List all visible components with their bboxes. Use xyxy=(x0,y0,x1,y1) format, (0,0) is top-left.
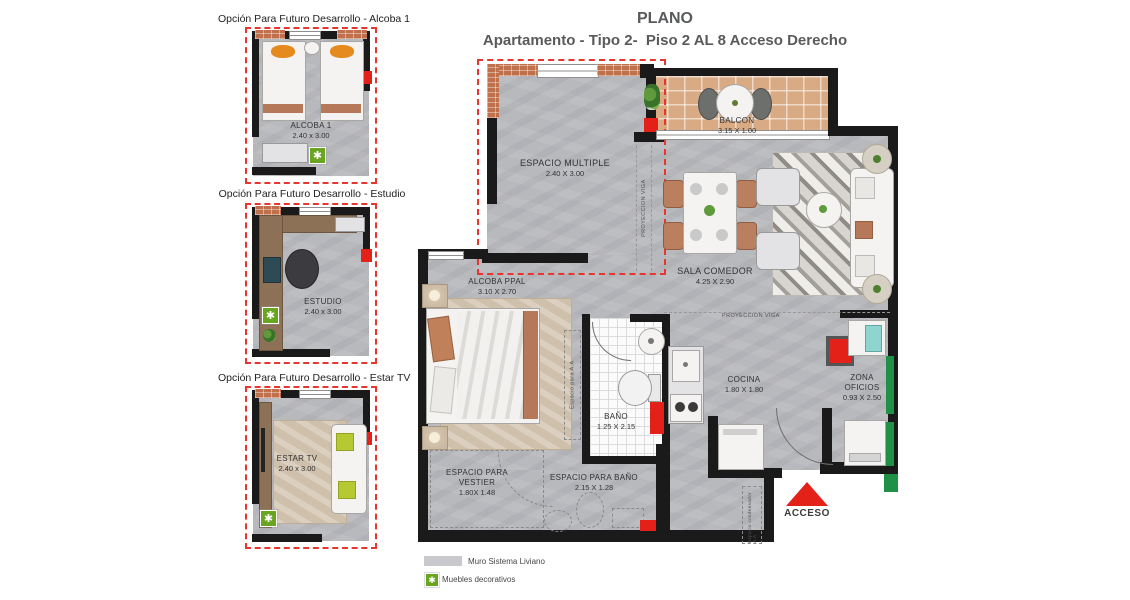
plate xyxy=(716,183,728,195)
sofa-accent-pillow xyxy=(855,221,873,239)
wall-bano-left xyxy=(582,314,590,464)
label-sala-comedor: SALA COMEDOR 4.25 X 2.90 xyxy=(665,266,765,287)
side-table-top xyxy=(862,144,892,174)
room-dims: 1.25 X 2.15 xyxy=(576,422,656,431)
dining-chair xyxy=(663,222,684,250)
zona-sink xyxy=(848,320,886,356)
drain xyxy=(683,362,688,367)
legend-furniture-label: Muebles decorativos xyxy=(442,575,515,584)
bed-runner xyxy=(523,311,538,419)
table-plant xyxy=(732,100,738,106)
room-name-2: OFICIOS xyxy=(822,383,902,393)
label-espacio-multiple: ESPACIO MULTIPLE 2.40 X 3.00 xyxy=(505,158,625,179)
wall-swatch xyxy=(424,556,462,566)
future-toilet-outline xyxy=(576,492,604,528)
label-zona-oficios: ZONA OFICIOS 0.93 X 2.50 xyxy=(822,373,902,402)
wall-espacio-left xyxy=(487,118,497,204)
dining-chair xyxy=(736,180,757,208)
cocina-sink xyxy=(672,350,700,382)
lamp xyxy=(429,290,440,301)
dining-table xyxy=(683,172,737,254)
room-name: SALA COMEDOR xyxy=(665,266,765,277)
appliance-panel xyxy=(723,429,757,435)
drain xyxy=(648,338,654,344)
plate xyxy=(716,229,728,241)
alcoba-bed xyxy=(426,308,540,424)
label-alcoba-ppal: ALCOBA PPAL 3.10 X 2.70 xyxy=(447,277,547,296)
room-name-2: VESTIER xyxy=(427,478,527,488)
wall-brick-left xyxy=(487,64,499,118)
cocina-stove xyxy=(670,394,702,422)
sala-sofa xyxy=(850,168,894,288)
furniture-marker-icon: ✱ xyxy=(425,573,439,587)
room-name: COCINA xyxy=(704,375,784,385)
dining-chair xyxy=(736,222,757,250)
room-dims: 3.10 X 2.70 xyxy=(447,287,547,296)
zona-green-block xyxy=(884,474,898,492)
proyeccion-viga-horizontal: PROYECCION VIGA xyxy=(664,312,890,323)
floor-plan-page: PLANO Apartamento - Tipo 2- Piso 2 AL 8 … xyxy=(0,0,1130,600)
zona-washer xyxy=(844,420,886,466)
espacio-condensador-annotation: Espacio condensador A.A xyxy=(742,486,762,544)
label-espacio-vestier: ESPACIO PARA VESTIER 1.80X 1.48 xyxy=(427,468,527,497)
burner xyxy=(688,402,698,412)
nightstand-bottom xyxy=(422,426,448,450)
cocina-appliance xyxy=(718,424,764,470)
balcony-plant xyxy=(644,84,660,110)
dining-chair xyxy=(663,180,684,208)
coffee-table-plant xyxy=(819,205,827,213)
legend: Muro Sistema Liviano ✱ Muebles decorativ… xyxy=(420,552,720,592)
centerpiece xyxy=(704,205,715,216)
room-dims: 0.93 X 2.50 xyxy=(822,393,902,402)
washer-controls xyxy=(849,453,881,462)
label-espacio-bano: ESPACIO PARA BAÑO 2.15 X 1.28 xyxy=(534,473,654,492)
bed-pillow xyxy=(430,366,457,414)
room-dims: 4.25 X 2.90 xyxy=(665,277,765,286)
armchair-bottom xyxy=(756,232,800,270)
bed-duvet xyxy=(457,311,523,419)
room-dims: 1.80 X 1.80 xyxy=(704,385,784,394)
room-name: ALCOBA PPAL xyxy=(447,277,547,287)
armchair-top xyxy=(756,168,800,206)
bano-sink xyxy=(638,328,665,355)
proyeccion-viga-label: PROYECCION VIGA xyxy=(722,313,780,319)
bano-toilet xyxy=(618,370,652,406)
room-dims: 2.15 X 1.28 xyxy=(534,483,654,492)
legend-wall-label: Muro Sistema Liviano xyxy=(468,557,545,566)
plate xyxy=(690,229,702,241)
wall-balcony-top xyxy=(648,68,836,76)
side-plant xyxy=(873,155,881,163)
zona-green-strip-2 xyxy=(886,422,894,466)
room-name: ZONA xyxy=(822,373,902,383)
side-plant xyxy=(873,285,881,293)
wall-entry-step xyxy=(764,470,774,542)
wall-divider-entry xyxy=(656,444,670,534)
side-table-bottom xyxy=(862,274,892,304)
proyeccion-viga-vertical: PROYECCION VIGA xyxy=(636,145,652,271)
lamp xyxy=(429,432,440,443)
wall-bottom xyxy=(418,530,774,542)
acceso-label: ACCESO xyxy=(770,508,844,519)
room-name: ESPACIO MULTIPLE xyxy=(505,158,625,169)
nightstand-top xyxy=(422,284,448,308)
room-name: ESPACIO PARA BAÑO xyxy=(534,473,654,483)
window-alcoba xyxy=(428,251,464,260)
burner xyxy=(675,402,685,412)
label-bano: BAÑO 1.25 X 2.15 xyxy=(576,412,656,431)
label-cocina: COCINA 1.80 X 1.80 xyxy=(704,375,784,394)
room-dims: 1.80X 1.48 xyxy=(427,488,527,497)
bed-pillow xyxy=(427,316,455,363)
sink-basin xyxy=(865,325,882,352)
sofa-pillow xyxy=(855,177,875,199)
room-name: BAÑO xyxy=(576,412,656,422)
wall-alcoba-top-right xyxy=(482,253,588,263)
acceso-arrow-icon xyxy=(786,482,828,506)
main-plan: Espacio para A.A xyxy=(0,0,1130,600)
room-dims: 2.40 X 3.00 xyxy=(505,169,625,178)
room-name: ESPACIO PARA xyxy=(427,468,527,478)
room-dims: 3.15 X 1.00 xyxy=(687,126,787,135)
label-balcon: BALCON 3.15 X 1.00 xyxy=(687,116,787,135)
window-espacio-multiple xyxy=(537,64,599,78)
future-sink-outline xyxy=(544,510,572,532)
room-name: BALCON xyxy=(687,116,787,126)
coffee-table xyxy=(806,192,842,228)
plate xyxy=(690,183,702,195)
